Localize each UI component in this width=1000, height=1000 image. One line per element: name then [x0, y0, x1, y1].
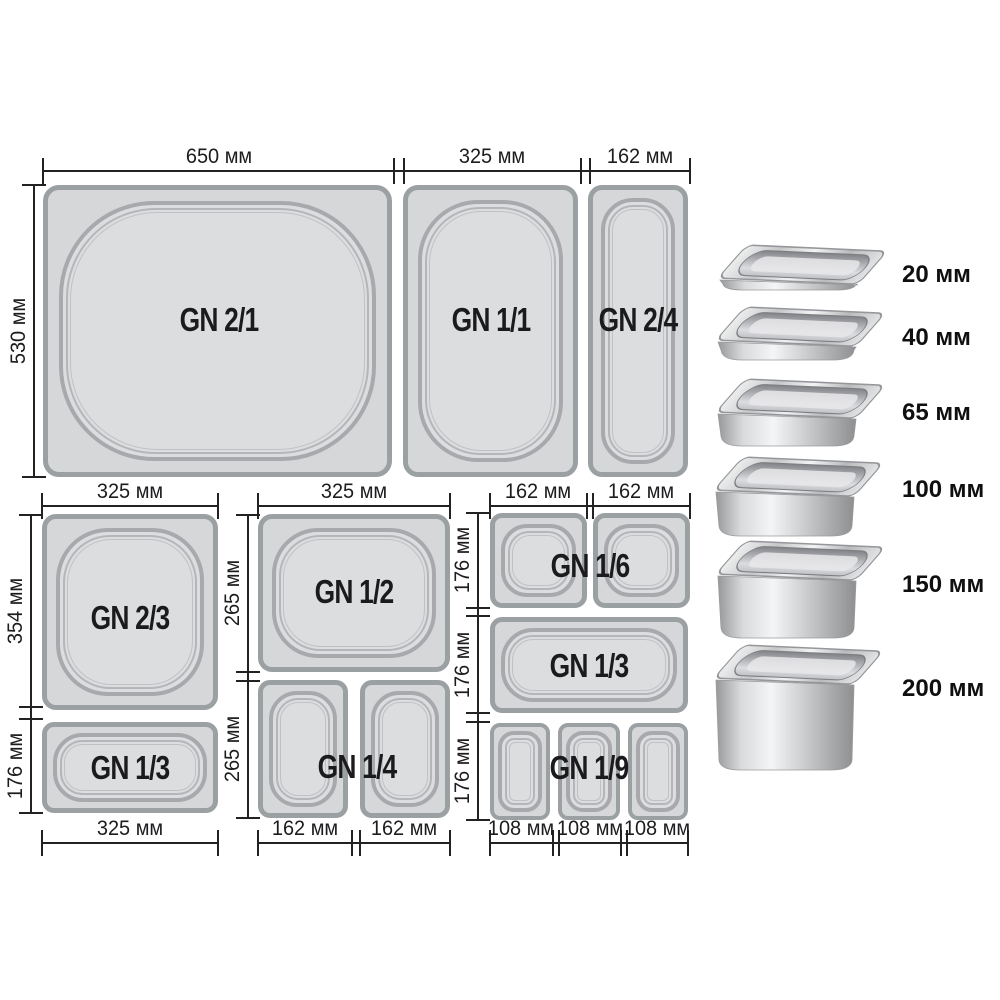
dimension-line [258, 842, 450, 844]
dimension-tick [449, 493, 451, 519]
dimension-line [247, 515, 249, 818]
pan-outline-gn-1-9-c [628, 723, 688, 820]
dimension-label: 162 мм [272, 817, 338, 841]
dimension-tick [236, 817, 260, 819]
dimension-label: 325 мм [459, 145, 525, 169]
gastronorm-size-chart: GN 2/1GN 1/1GN 2/4GN 2/3GN 1/3GN 1/2GN 1… [0, 0, 1000, 1000]
dimension-line [42, 505, 218, 507]
depth-label-100mm: 100 мм [902, 476, 984, 504]
dimension-tick [403, 158, 405, 184]
dimension-tick [236, 514, 260, 516]
dimension-tick [217, 493, 219, 519]
dimension-tick [592, 493, 594, 519]
pan-outline-gn-1-9-a [490, 723, 550, 820]
depth-label-150mm: 150 мм [902, 571, 984, 599]
dimension-label: 162 мм [607, 145, 673, 169]
dimension-tick [41, 830, 43, 856]
pan-label-gn-2-4: GN 2/4 [599, 301, 678, 339]
dimension-tick [449, 830, 451, 856]
pan-label-gn-1-2: GN 1/2 [315, 573, 394, 611]
dimension-label: 265 мм [221, 716, 245, 782]
dimension-line [477, 513, 479, 820]
dimension-label: 265 мм [221, 560, 245, 626]
pan-inner-rim [647, 742, 669, 801]
pan-label-gn-2-1: GN 2/1 [180, 301, 259, 339]
dimension-tick [489, 493, 491, 519]
depth-label-65mm: 65 мм [902, 399, 971, 427]
dimension-line [33, 185, 35, 477]
pan-label-gn-1-3-left: GN 1/3 [91, 749, 170, 787]
dimension-tick [19, 718, 43, 720]
dimension-line [258, 505, 450, 507]
dimension-label: 108 мм [557, 817, 623, 841]
dimension-label: 325 мм [321, 480, 387, 504]
dimension-tick [466, 819, 490, 821]
pan-photo-65mm [704, 372, 889, 461]
pan-photo-200mm [702, 638, 887, 785]
pan-label-gn-1-3-right: GN 1/3 [550, 647, 629, 685]
dimension-tick [589, 158, 591, 184]
dimension-line [42, 842, 218, 844]
dimension-tick [466, 721, 490, 723]
dimension-line [490, 505, 690, 507]
dimension-label: 650 мм [186, 145, 252, 169]
dimension-tick [466, 512, 490, 514]
dimension-label: 176 мм [4, 733, 28, 799]
dimension-label: 530 мм [7, 298, 31, 364]
dimension-tick [351, 830, 353, 856]
dimension-label: 108 мм [488, 817, 554, 841]
dimension-label: 325 мм [97, 480, 163, 504]
dimension-tick [466, 712, 490, 714]
pan-photo-svg-200mm [702, 638, 887, 780]
dimension-tick [359, 830, 361, 856]
dimension-tick [257, 830, 259, 856]
dimension-tick [393, 158, 395, 184]
dimension-label: 176 мм [451, 632, 475, 698]
pan-label-gn-1-1: GN 1/1 [452, 301, 531, 339]
dimension-tick [466, 615, 490, 617]
dimension-label: 108 мм [624, 817, 690, 841]
pan-photo-20mm [706, 238, 891, 305]
pan-label-gn-2-3: GN 2/3 [91, 599, 170, 637]
pan-inner-rim [509, 742, 531, 801]
dimension-tick [42, 158, 44, 184]
pan-label-gn-1-4: GN 1/4 [318, 748, 397, 786]
dimension-line [490, 842, 688, 844]
depth-label-40mm: 40 мм [902, 324, 971, 352]
dimension-label: 176 мм [451, 527, 475, 593]
dimension-tick [580, 158, 582, 184]
dimension-tick [466, 607, 490, 609]
dimension-label: 325 мм [97, 817, 163, 841]
pan-photo-150mm [704, 534, 889, 653]
pan-photo-svg-65mm [704, 372, 889, 456]
dimension-label: 162 мм [608, 480, 674, 504]
pan-photo-svg-150mm [704, 534, 889, 648]
dimension-tick [19, 514, 43, 516]
pan-photo-svg-100mm [702, 450, 887, 546]
pan-photo-40mm [704, 300, 889, 375]
depth-label-200mm: 200 мм [902, 675, 984, 703]
dimension-tick [22, 184, 46, 186]
dimension-tick [586, 493, 588, 519]
dimension-tick [689, 158, 691, 184]
pan-label-gn-1-6: GN 1/6 [551, 547, 630, 585]
dimension-tick [236, 680, 260, 682]
dimension-tick [19, 812, 43, 814]
pan-label-gn-1-9: GN 1/9 [550, 749, 629, 787]
dimension-tick [689, 493, 691, 519]
pan-photo-svg-20mm [706, 238, 891, 300]
pan-photo-svg-40mm [704, 300, 889, 370]
dimension-label: 162 мм [371, 817, 437, 841]
dimension-tick [22, 476, 46, 478]
dimension-line [43, 170, 690, 172]
dimension-label: 162 мм [505, 480, 571, 504]
dimension-tick [236, 671, 260, 673]
dimension-label: 354 мм [4, 578, 28, 644]
dimension-line [30, 515, 32, 813]
depth-label-20mm: 20 мм [902, 261, 971, 289]
dimension-label: 176 мм [451, 738, 475, 804]
dimension-tick [19, 706, 43, 708]
dimension-tick [217, 830, 219, 856]
